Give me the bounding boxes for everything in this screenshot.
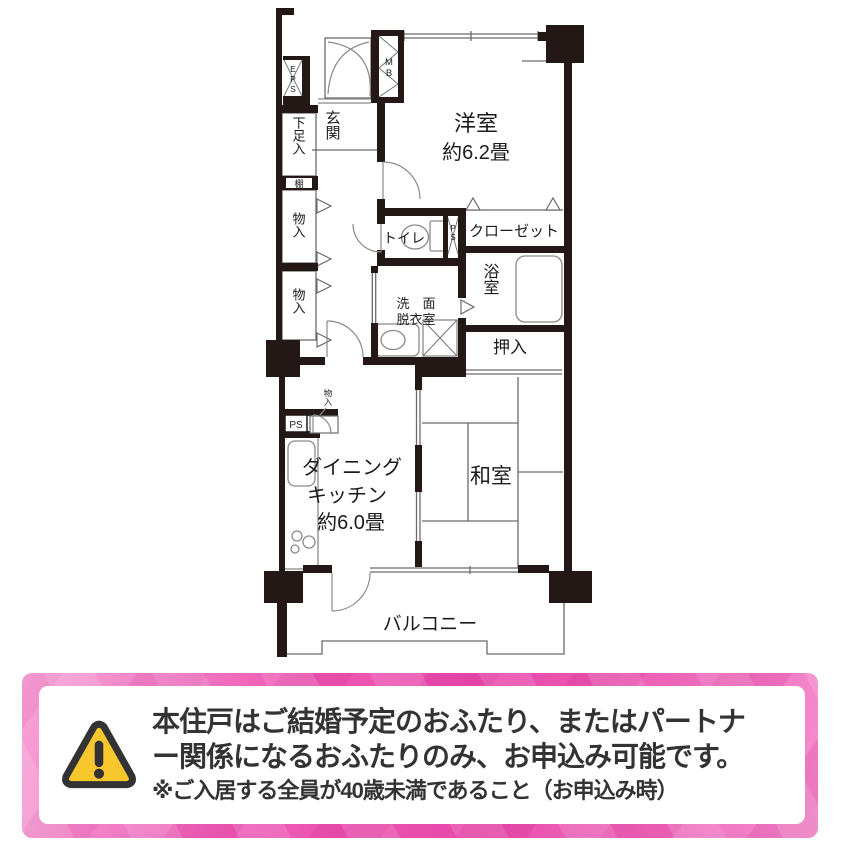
western-room-size-label: 約6.2畳 <box>442 141 510 164</box>
ps-shaft-upper: PS <box>448 216 458 258</box>
closet-label: クローゼット <box>469 223 559 240</box>
storage-folding-door-marks <box>317 199 331 347</box>
notice-line-3: ※ご入居する全員が40歳未満であること（お申込み時） <box>152 776 745 806</box>
ps-kitchen-label: PS <box>289 420 303 431</box>
dk-storage-label: 物入 <box>323 388 333 406</box>
notice-card: 本住戸はご結婚予定のおふたり、またはパートナ ー関係になるおふたりのみ、お申込み… <box>39 686 805 824</box>
washroom-sliding-door <box>370 273 378 323</box>
dining-label-line1: ダイニング <box>302 456 402 479</box>
shelf-label: 棚 <box>294 178 303 189</box>
oshiire-label: 押入 <box>493 338 527 357</box>
dining-size-label: 約6.0畳 <box>317 511 385 534</box>
dining-label-line2: キッチン <box>307 485 387 507</box>
bath-door-mark <box>461 300 474 314</box>
mb-meter-box: MB <box>379 36 398 97</box>
western-room-label: 洋室 <box>454 111 498 136</box>
notice-line-2: ー関係になるおふたりのみ、お申込み可能です。 <box>152 739 745 774</box>
entrance-porch-outline <box>325 38 371 98</box>
balcony-label: バルコニー <box>383 614 478 635</box>
eps-label: EPS <box>288 64 298 94</box>
page: EPS MB PS <box>0 0 842 842</box>
ps-upper-label: PS <box>449 224 458 242</box>
notice-line-1: 本住戸はご結婚予定のおふたり、またはパートナ <box>152 704 745 739</box>
closet-folding-door-marks <box>466 198 563 210</box>
washstand <box>374 324 419 356</box>
bathtub <box>516 256 562 322</box>
floorplan-drawing: EPS MB PS <box>0 0 842 673</box>
storage1-label: 物入 <box>291 212 306 238</box>
balcony-window <box>370 566 518 574</box>
mb-label: MB <box>384 57 395 79</box>
shelf-band: 棚 <box>286 178 312 189</box>
oshiire-sliding-door <box>466 370 562 374</box>
entrance-label: 玄関 <box>324 110 341 141</box>
washroom-label-line2: 脱衣室 <box>396 312 435 327</box>
notice-banner: 本住戸はご結婚予定のおふたり、またはパートナ ー関係になるおふたりのみ、お申込み… <box>22 673 818 838</box>
window-top <box>404 31 546 61</box>
shoe-cabinet-label: 下足入 <box>291 116 306 155</box>
warning-triangle-icon <box>60 719 138 791</box>
eps-shaft: EPS <box>284 60 302 96</box>
notice-text: 本住戸はご結婚予定のおふたり、またはパートナ ー関係になるおふたりのみ、お申込み… <box>152 704 745 806</box>
toilet-label: トイレ <box>383 230 425 246</box>
storage2-label: 物入 <box>291 288 306 314</box>
japanese-room-label: 和室 <box>470 465 512 488</box>
bathroom-label: 浴室 <box>481 263 500 295</box>
warning-icon-wrap <box>60 719 138 791</box>
entrance-door-arcs <box>318 42 371 103</box>
washroom-label-line1: 洗 面 <box>396 296 435 311</box>
ps-kitchen-box: PS <box>285 415 307 432</box>
